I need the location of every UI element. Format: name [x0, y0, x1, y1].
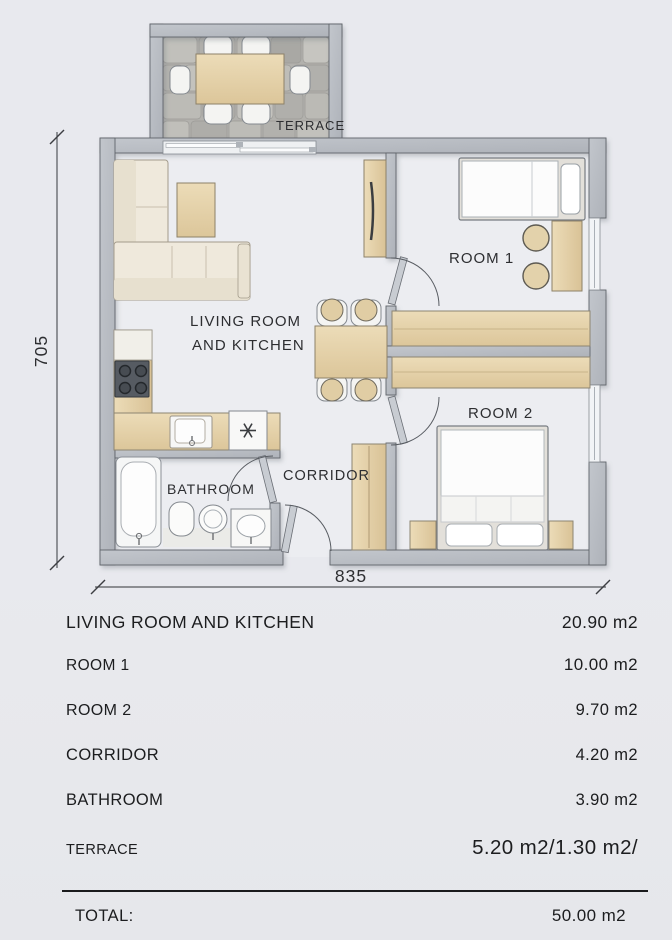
bathroom-label: BATHROOM	[167, 481, 255, 497]
bathtub	[116, 457, 161, 547]
legend-row: ROOM 1 10.00 m2	[66, 655, 638, 675]
pillow	[497, 524, 543, 546]
legend-row-area: 20.90 m2	[562, 612, 638, 633]
window-room1	[589, 218, 600, 290]
living-room-label-1: LIVING ROOM	[190, 313, 301, 330]
wall-room-divider	[386, 346, 590, 357]
dimension-width-value: 835	[335, 566, 367, 586]
living-room-label-2: AND KITCHEN	[192, 337, 305, 354]
legend-row-area: 5.20 m2/1.30 m2/	[472, 836, 638, 860]
legend-row-area: 10.00 m2	[564, 655, 638, 675]
room1-bed	[459, 158, 585, 220]
wall-right-mid	[589, 290, 606, 385]
legend-row: BATHROOM 3.90 m2	[66, 791, 638, 810]
legend-row-area: 9.70 m2	[576, 701, 638, 720]
total-label: TOTAL:	[75, 907, 134, 926]
legend-row: LIVING ROOM AND KITCHEN 20.90 m2	[66, 612, 638, 633]
terrace-chair	[204, 102, 232, 124]
legend-row-area: 4.20 m2	[576, 746, 638, 765]
dimension-height-value: 705	[31, 335, 51, 367]
legend-row: ROOM 2 9.70 m2	[66, 701, 638, 720]
legend-row: TERRACE 5.20 m2/1.30 m2/	[66, 836, 638, 860]
terrace-table	[196, 54, 284, 104]
pillow	[561, 164, 580, 214]
room1-label: ROOM 1	[449, 250, 514, 267]
room2-wardrobe	[392, 357, 590, 388]
floor-plan-svg: TERRACE LIVING ROOM AND KITCHEN ROOM 1 R…	[0, 0, 672, 600]
stove	[115, 361, 149, 397]
toilet	[169, 502, 194, 536]
room2-bed	[437, 426, 548, 550]
kitchen-sink	[170, 416, 212, 448]
room2-label: ROOM 2	[468, 405, 533, 422]
wall-bottom-right	[330, 550, 606, 565]
total-divider-line	[62, 890, 648, 892]
room1-desk	[552, 221, 582, 291]
legend-row-label: ROOM 1	[66, 657, 130, 675]
area-legend: LIVING ROOM AND KITCHEN 20.90 m2 ROOM 1 …	[0, 600, 672, 926]
legend-row-label: ROOM 2	[66, 702, 132, 720]
legend-row-label: CORRIDOR	[66, 746, 159, 765]
wall-right-top	[589, 138, 606, 218]
tv-cabinet	[364, 160, 386, 257]
terrace-chair	[242, 102, 270, 124]
room1-wardrobe	[392, 311, 590, 346]
coffee-table	[177, 183, 215, 237]
total-row: TOTAL: 50.00 m2	[66, 906, 638, 926]
legend-row-label: BATHROOM	[66, 791, 163, 810]
terrace-sliding-door	[163, 141, 316, 154]
legend-row-label: TERRACE	[66, 842, 138, 858]
washbasin	[231, 509, 271, 547]
total-area: 50.00 m2	[552, 906, 626, 926]
pillow	[446, 524, 492, 546]
terrace-chair	[170, 66, 190, 94]
terrace-label: TERRACE	[276, 118, 345, 133]
window-room2	[589, 385, 600, 462]
dishwasher	[229, 411, 267, 450]
legend-row-label: LIVING ROOM AND KITCHEN	[66, 612, 314, 633]
wall-right-bottom	[589, 462, 606, 565]
dining-table	[315, 326, 387, 378]
wall-living-room1	[386, 153, 396, 258]
terrace-chair	[290, 66, 310, 94]
legend-row: CORRIDOR 4.20 m2	[66, 746, 638, 765]
dining-set	[315, 299, 387, 401]
wall-room2-lower	[386, 443, 396, 550]
floor-plan: TERRACE LIVING ROOM AND KITCHEN ROOM 1 R…	[0, 0, 672, 600]
wall-bottom-left	[100, 550, 283, 565]
corridor-label: CORRIDOR	[283, 468, 370, 484]
wall-left	[100, 138, 115, 565]
corridor-cabinet	[352, 444, 386, 550]
legend-row-area: 3.90 m2	[576, 791, 638, 810]
